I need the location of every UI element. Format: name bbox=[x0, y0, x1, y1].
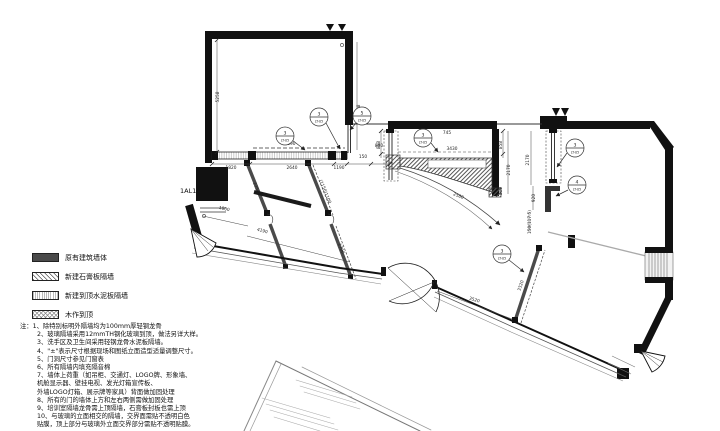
dim-mid-small: 745 bbox=[443, 130, 451, 136]
glass-partitions bbox=[384, 129, 575, 248]
dim-seg5: 150 bbox=[359, 154, 367, 160]
legend-label: 木作到顶 bbox=[65, 310, 93, 320]
dim-4190: 4190 bbox=[256, 227, 268, 236]
drawing-sheet: 5258 6890 1820 2640 1190 880 150 3608 34… bbox=[0, 0, 720, 431]
lower-right-partition bbox=[512, 245, 545, 323]
callout-num: 5 bbox=[361, 111, 364, 117]
callout-num: 3 bbox=[574, 143, 577, 149]
dim-800: 800 bbox=[498, 187, 504, 195]
dim-117: 150(117.5) bbox=[527, 210, 533, 234]
dim-mid-v2: 2170 bbox=[525, 154, 531, 165]
note-line: 贴膜，顶上部分与玻璃外立面交界部分需贴不透明贴膜。 bbox=[20, 421, 260, 429]
dim-seg3: 1190 bbox=[334, 165, 345, 171]
note-line: 4、"±"表示尺寸根据现场和图纸立面造型适量调整尺寸。 bbox=[20, 348, 260, 356]
callout-sheet: LT-05 bbox=[315, 120, 323, 124]
legend-label: 新建石膏板隔墙 bbox=[65, 272, 114, 282]
note-line: 5、门洞尺寸参见门窗表 bbox=[20, 356, 260, 364]
legend-swatch-wood-ceiling bbox=[32, 310, 59, 319]
callout-sheet: LT-05 bbox=[419, 141, 427, 145]
big-room-bottom-partition bbox=[212, 148, 347, 160]
callout-num: 3 bbox=[422, 133, 425, 139]
area-label: 1AL1 bbox=[180, 187, 196, 195]
callout-sheet: LT-05 bbox=[573, 188, 581, 192]
callout-bubble: 3 LT-05 bbox=[310, 108, 340, 149]
dim-mid-h2: 858 bbox=[498, 141, 504, 149]
callout-num: 3 bbox=[501, 249, 504, 255]
notes-block: 注：1、除特别标明外隔墙均为100mm厚轻钢龙骨 2、玻璃隔墙采用12mmTH钢… bbox=[20, 323, 260, 430]
adjacent-sheet-fragment bbox=[244, 361, 431, 431]
callout-sheet: LT-05 bbox=[571, 151, 579, 155]
callout-sheet: LT-05 bbox=[498, 257, 506, 261]
callout-bubble: 3 LT-05 bbox=[493, 245, 524, 272]
note-line: 8、所有的门的墙体上方和左右两侧需做加固处理 bbox=[20, 397, 260, 405]
dim-920: 920 bbox=[531, 194, 537, 202]
reception-desk bbox=[395, 158, 500, 229]
callout-num: 3 bbox=[284, 131, 287, 137]
callout-bubble: 4 LT-05 bbox=[556, 176, 586, 196]
note-line: 9、培训室隔墙龙骨需上顶隔墙，石膏板封板也需上顶 bbox=[20, 405, 260, 413]
callout-num: 4 bbox=[576, 180, 579, 186]
legend-label: 原有建筑墙体 bbox=[65, 253, 107, 263]
survey-marker-icons bbox=[326, 24, 569, 116]
legend-swatch-existing-wall bbox=[32, 253, 59, 262]
note-line: 机舱显示器、壁挂电视、发光灯箱宣传板、 bbox=[20, 380, 260, 388]
legend-label: 新建到顶水泥板隔墙 bbox=[65, 291, 128, 301]
dim-mid-h1: 858 bbox=[376, 141, 382, 149]
legend-item-existing-wall: 原有建筑墙体 bbox=[32, 248, 128, 267]
dim-seg1: 1820 bbox=[226, 165, 237, 171]
entrance-double-door bbox=[381, 263, 439, 312]
corner-door-fans bbox=[191, 229, 665, 372]
callout-bubble: 3 LT-05 bbox=[414, 129, 438, 152]
callout-sheet: LT-05 bbox=[358, 119, 366, 123]
legend-swatch-cement-partition bbox=[32, 291, 59, 300]
legend-item-wood-ceiling: 木作到顶 bbox=[32, 305, 128, 324]
dim-v-left: 5258 bbox=[215, 91, 221, 102]
callout-bubble: 5 LT-05 bbox=[350, 107, 371, 130]
note-line: 外墙LOGO灯箱、展示牌等家具）背面做加固处理 bbox=[20, 389, 260, 397]
note-line: 6、所有隔墙内填充隔音棉 bbox=[20, 364, 260, 372]
dim-mid-v1: 2170 bbox=[506, 164, 512, 175]
legend: 原有建筑墙体 新建石膏板隔墙 新建到顶水泥板隔墙 木作到顶 bbox=[32, 248, 128, 324]
callout-num: 3 bbox=[318, 112, 321, 118]
dim-mid-width: 3430 bbox=[447, 146, 458, 152]
callout-sheet: LT-05 bbox=[281, 139, 289, 143]
note-line: 注：1、除特别标明外隔墙均为100mm厚轻钢龙骨 bbox=[20, 323, 260, 331]
legend-swatch-gypsum-partition bbox=[32, 272, 59, 281]
dim-seg2: 2640 bbox=[287, 165, 298, 171]
note-line: 3、洗手区及卫生间采用轻钢龙骨水泥板隔墙。 bbox=[20, 339, 260, 347]
legend-item-gypsum-partition: 新建石膏板隔墙 bbox=[32, 267, 128, 286]
legend-item-cement-partition: 新建到顶水泥板隔墙 bbox=[32, 286, 128, 305]
ladder-symbol bbox=[548, 232, 673, 283]
structural-walls bbox=[189, 31, 674, 379]
